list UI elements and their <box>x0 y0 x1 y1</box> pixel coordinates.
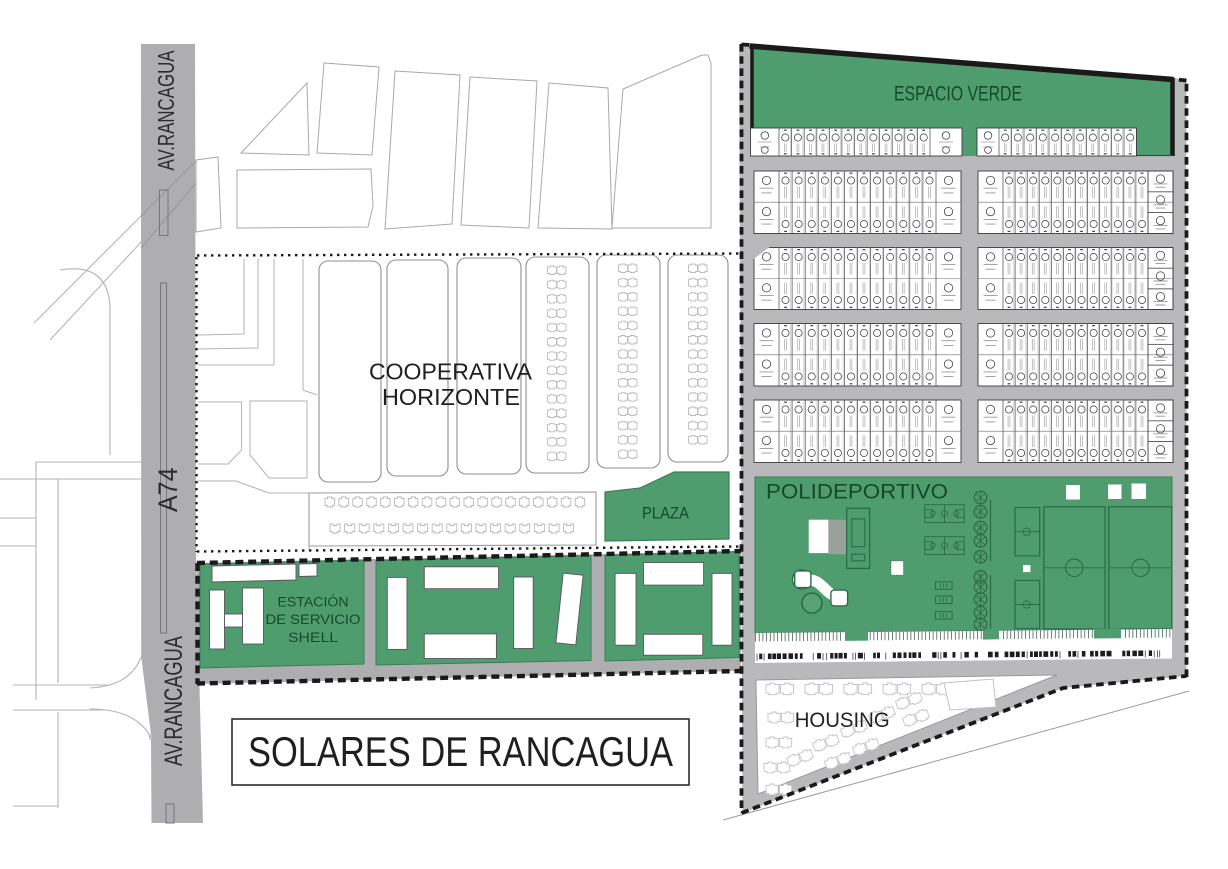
svg-text:AV.RANCAGUA: AV.RANCAGUA <box>153 50 179 170</box>
svg-text:AV.RANCAGUA: AV.RANCAGUA <box>160 636 188 766</box>
svg-text:ESTACIÓN: ESTACIÓN <box>278 594 349 609</box>
svg-text:HORIZONTE: HORIZONTE <box>382 384 520 410</box>
svg-text:COOPERATIVA: COOPERATIVA <box>369 358 532 384</box>
svg-text:ESPACIO VERDE: ESPACIO VERDE <box>894 83 1022 106</box>
svg-text:HOUSING: HOUSING <box>795 707 890 732</box>
svg-text:SHELL: SHELL <box>288 630 339 645</box>
svg-text:PLAZA: PLAZA <box>642 504 690 523</box>
svg-text:DE SERVICIO: DE SERVICIO <box>266 612 361 627</box>
svg-text:A74: A74 <box>153 468 183 513</box>
svg-text:SOLARES DE RANCAGUA: SOLARES DE RANCAGUA <box>248 728 673 775</box>
svg-text:POLIDEPORTIVO: POLIDEPORTIVO <box>766 481 948 504</box>
